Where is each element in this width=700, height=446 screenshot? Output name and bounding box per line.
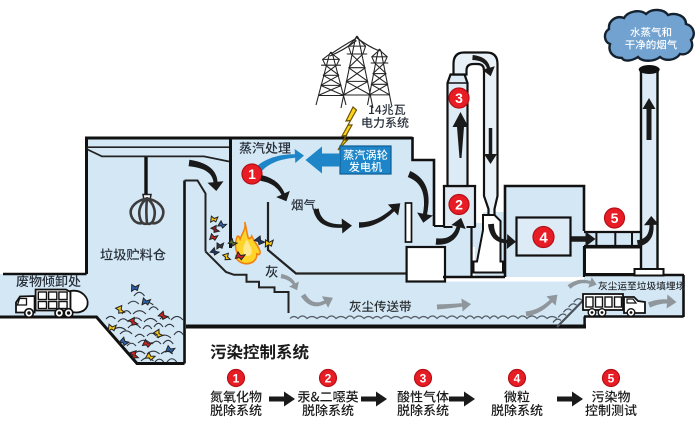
svg-text:2: 2 [325, 371, 332, 385]
svg-text:5: 5 [608, 371, 615, 385]
svg-text:1: 1 [233, 371, 240, 385]
svg-text:2: 2 [455, 197, 463, 213]
svg-text:3: 3 [420, 371, 427, 385]
svg-text:4: 4 [539, 229, 548, 246]
svg-text:5: 5 [611, 210, 619, 226]
svg-text:1: 1 [248, 166, 256, 182]
svg-text:4: 4 [514, 371, 521, 385]
svg-text:3: 3 [455, 90, 463, 106]
